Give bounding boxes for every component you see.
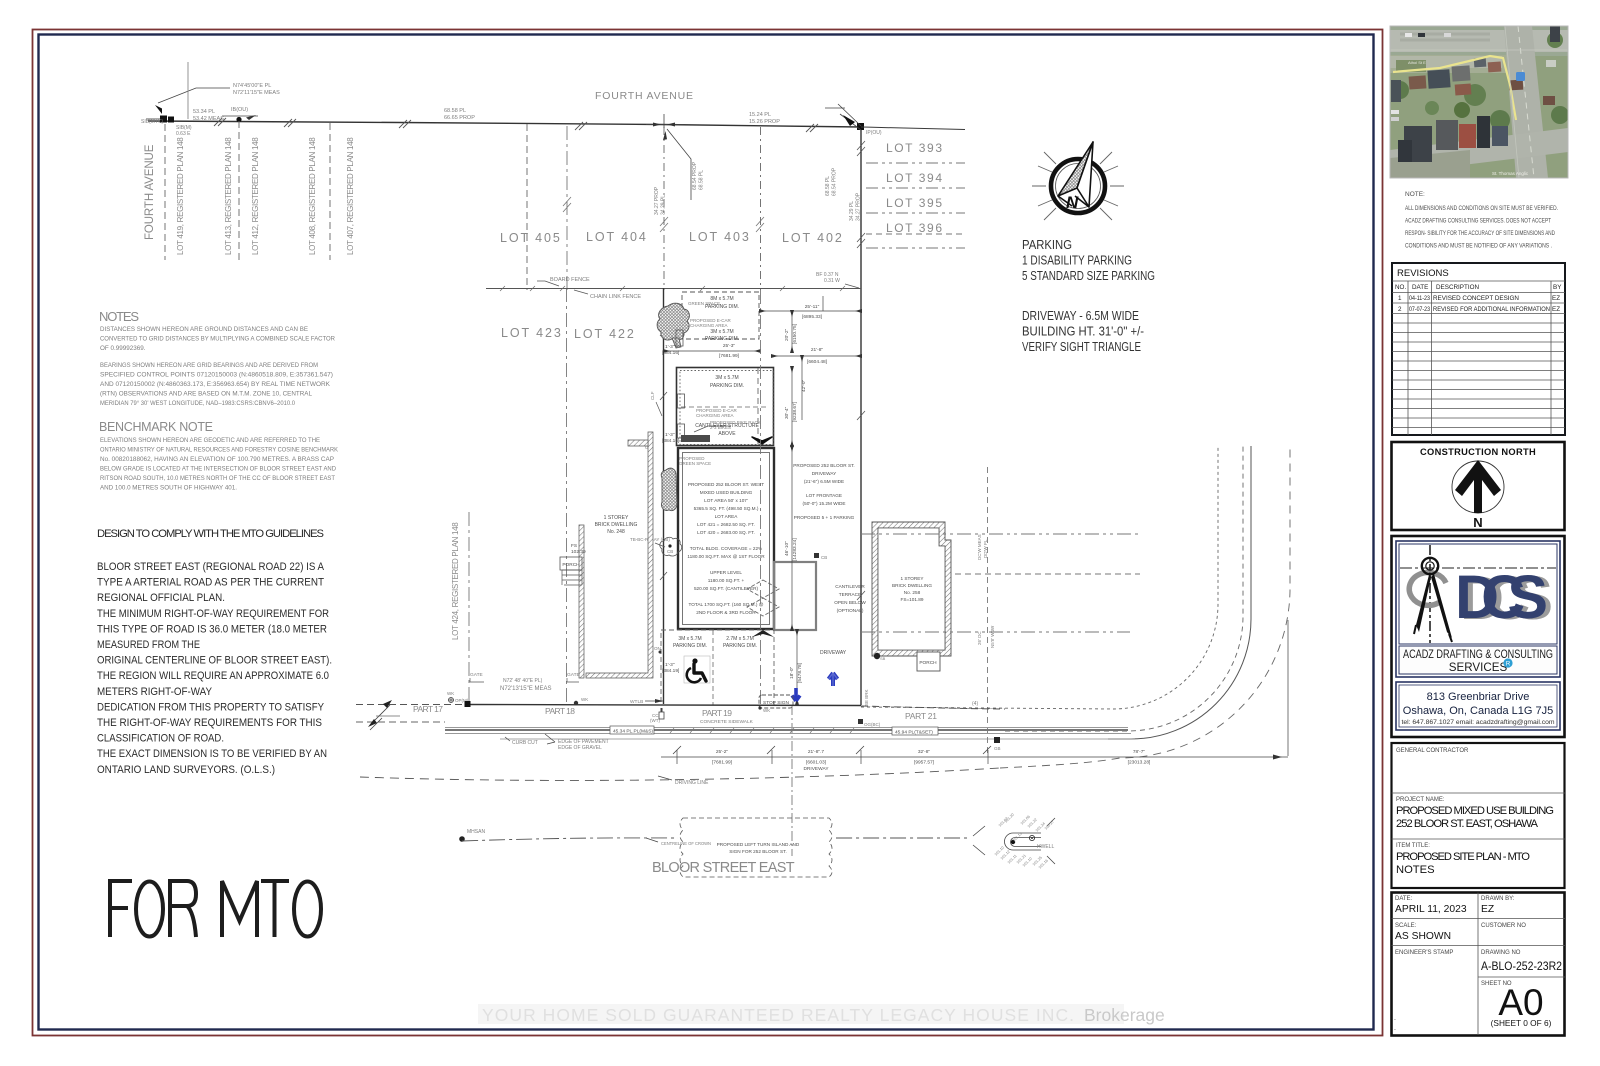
svg-text:PROPOSED 252 BLOOR ST. WEST: PROPOSED 252 BLOOR ST. WEST — [688, 482, 764, 487]
svg-text:BENCHMARK NOTE: BENCHMARK NOTE — [99, 420, 213, 434]
svg-text:N: N — [1066, 193, 1079, 212]
svg-text:N74'45'00"E PL: N74'45'00"E PL — [233, 83, 271, 89]
svg-text:DRIVEWAY: DRIVEWAY — [803, 766, 829, 772]
svg-text:DRIVING LINE: DRIVING LINE — [675, 780, 709, 786]
svg-text:EDGE OF GRAVEL: EDGE OF GRAVEL — [558, 745, 602, 751]
svg-text:St. Thomas Anglic: St. Thomas Anglic — [1492, 171, 1529, 176]
svg-text:PART 19: PART 19 — [702, 708, 733, 718]
svg-text:SIB(MTC): SIB(MTC) — [141, 119, 164, 125]
svg-text:PART 21: PART 21 — [905, 711, 938, 721]
svg-text:SB: SB — [880, 656, 886, 661]
svg-text:VERIFY SIGHT TRIANGLE: VERIFY SIGHT TRIANGLE — [1022, 340, 1141, 354]
svg-text:BY: BY — [1553, 284, 1562, 291]
svg-text:DD'W PL: DD'W PL — [983, 539, 988, 558]
svg-text:FS: FS — [571, 543, 577, 549]
svg-text:PORCH: PORCH — [562, 562, 580, 568]
svg-text:No. 00820188062, HAVING AN ELE: No. 00820188062, HAVING AN ELEVATION OF … — [100, 456, 334, 463]
svg-text:04-11-23: 04-11-23 — [1409, 295, 1430, 302]
svg-text:CONVERTED TO GRID DISTANCES BY: CONVERTED TO GRID DISTANCES BY MULTIPLYI… — [100, 336, 335, 343]
svg-text:DATE:: DATE: — [1395, 896, 1413, 902]
svg-text:1'-3": 1'-3" — [665, 344, 675, 350]
svg-text:BEARINGS SHOWN HEREON ARE GRID: BEARINGS SHOWN HEREON ARE GRID BEARINGS … — [100, 362, 318, 369]
svg-text:DC'W MEAS: DC'W MEAS — [977, 534, 982, 560]
svg-text:CONSTRUCTION NORTH: CONSTRUCTION NORTH — [1420, 447, 1536, 457]
svg-text:APRIL 11, 2023: APRIL 11, 2023 — [1395, 904, 1467, 915]
svg-text:25'-2": 25'-2" — [716, 749, 729, 755]
svg-text:ORIGINAL CENTERLINE OF BLOOR S: ORIGINAL CENTERLINE OF BLOOR STREET EAST… — [97, 655, 332, 667]
svg-text:.: . — [1394, 1025, 1396, 1032]
svg-text:34.27 PROP: 34.27 PROP — [654, 186, 660, 215]
svg-text:AND 07120150002 (N:4860363.173: AND 07120150002 (N:4860363.173, E:356963… — [100, 381, 331, 388]
svg-text:34.29 PL: 34.29 PL — [849, 201, 855, 221]
svg-text:[384.19]: [384.19] — [662, 668, 679, 674]
svg-text:LOT 404: LOT 404 — [586, 230, 648, 244]
svg-text:IP(OU): IP(OU) — [866, 130, 882, 136]
svg-text:1 STOREY: 1 STOREY — [900, 576, 924, 581]
svg-text:NOTES: NOTES — [1396, 864, 1435, 876]
svg-text:DESIGN TO COMPLY WITH THE MTO: DESIGN TO COMPLY WITH THE MTO GUIDELINES — [97, 528, 324, 540]
svg-text:LOT 394: LOT 394 — [886, 171, 944, 185]
svg-text:AS SHOWN: AS SHOWN — [1395, 931, 1451, 942]
svg-text:Athol St E: Athol St E — [1408, 60, 1426, 65]
svg-text:DEDICATION FROM THIS PROPERTY: DEDICATION FROM THIS PROPERTY TO SATISFY — [97, 701, 324, 713]
svg-text:A0: A0 — [1498, 982, 1543, 1023]
svg-text:CHARGING AREA: CHARGING AREA — [696, 413, 734, 418]
svg-text:SERVICES: SERVICES — [1449, 661, 1508, 674]
svg-text:PROPOSED 5 + 1 PARKING: PROPOSED 5 + 1 PARKING — [794, 515, 855, 520]
svg-text:LOT 408, REGISTERED PLAN 148: LOT 408, REGISTERED PLAN 148 — [308, 137, 317, 255]
svg-text:[6150.75]: [6150.75] — [792, 324, 798, 344]
svg-text:EZ: EZ — [1552, 306, 1560, 313]
svg-text:REVISED CONCEPT DESIGN: REVISED CONCEPT DESIGN — [1433, 295, 1519, 302]
svg-text:[6604.48]: [6604.48] — [807, 359, 827, 365]
svg-text:LOT AREA: LOT AREA — [715, 514, 739, 519]
svg-text:CURB CUT: CURB CUT — [512, 740, 538, 746]
svg-text:THE REGION WILL REQUIRE AN APP: THE REGION WILL REQUIRE AN APPROXIMATE 6… — [97, 670, 329, 682]
svg-text:THE RIGHT-OF-WAY REQUIREMENTS: THE RIGHT-OF-WAY REQUIREMENTS FOR THIS — [97, 717, 322, 729]
svg-text:(50'-0") 15.2M WIDE: (50'-0") 15.2M WIDE — [803, 501, 846, 506]
svg-text:18'-0": 18'-0" — [789, 666, 795, 679]
svg-text:DRAWN BY:: DRAWN BY: — [1481, 896, 1515, 902]
svg-text:25'-3": 25'-3" — [723, 343, 736, 349]
svg-text:WK: WK — [447, 691, 454, 696]
svg-text:GENERAL CONTRACTOR: GENERAL CONTRACTOR — [1396, 748, 1469, 754]
svg-text:LOT 423: LOT 423 — [501, 326, 563, 340]
svg-text:3M x 5.7M: 3M x 5.7M — [710, 329, 733, 335]
svg-text:SE BRK: SE BRK — [864, 689, 869, 706]
svg-text:LOT 407, REGISTERED PLAN 148: LOT 407, REGISTERED PLAN 148 — [346, 137, 355, 255]
svg-text:2-3 BIKES: 2-3 BIKES — [710, 425, 731, 430]
svg-text:78'-7": 78'-7" — [1133, 749, 1146, 755]
svg-text:PROPOSED MIXED USE BUILDING: PROPOSED MIXED USE BUILDING — [1396, 805, 1554, 817]
svg-text:813 Greenbriar Drive: 813 Greenbriar Drive — [1427, 691, 1530, 703]
svg-text:0.63 E: 0.63 E — [176, 131, 191, 137]
svg-text:2ND FLOOR & 3RD FLOOR: 2ND FLOOR & 3RD FLOOR — [696, 610, 756, 615]
svg-text:CHAIN LINK FENCE: CHAIN LINK FENCE — [590, 294, 641, 300]
svg-text:PROPOSED SITE PLAN - MTO: PROPOSED SITE PLAN - MTO — [1396, 851, 1530, 863]
svg-text:GATE: GATE — [567, 672, 580, 678]
svg-text:21'-8".7: 21'-8".7 — [808, 749, 825, 755]
svg-text:LOT FRONTAGE: LOT FRONTAGE — [806, 493, 842, 498]
svg-text:BRICK DWELLING: BRICK DWELLING — [595, 522, 638, 528]
svg-text:DISTANCES SHOWN HEREON ARE GRO: DISTANCES SHOWN HEREON ARE GROUND DISTAN… — [100, 326, 308, 333]
svg-text:[14283.24]: [14283.24] — [792, 538, 798, 561]
svg-text:DESCRIPTION: DESCRIPTION — [1436, 284, 1479, 291]
svg-text:TERRACE: TERRACE — [839, 592, 861, 597]
svg-text:CLASSIFICATION OF ROAD.: CLASSIFICATION OF ROAD. — [97, 733, 224, 745]
svg-text:BLOOR STREET EAST (REGIONAL RO: BLOOR STREET EAST (REGIONAL ROAD 22) IS … — [97, 561, 324, 573]
svg-text:[384.16]: [384.16] — [662, 438, 679, 444]
svg-text:PART 17: PART 17 — [413, 704, 444, 714]
svg-text:BELOW GRADE IS LOCATED AT THE: BELOW GRADE IS LOCATED AT THE INTERSECTI… — [100, 466, 336, 473]
svg-text:EZ: EZ — [1552, 295, 1560, 302]
svg-text:OPEN BELOW: OPEN BELOW — [834, 600, 866, 605]
svg-text:68.58 PL: 68.58 PL — [825, 176, 831, 196]
svg-text:252 BLOOR ST. EAST, OSHAWA: 252 BLOOR ST. EAST, OSHAWA — [1396, 818, 1539, 830]
svg-text:GREEN SPACE: GREEN SPACE — [679, 461, 711, 466]
svg-text:A-BLO-252-23R2: A-BLO-252-23R2 — [1481, 959, 1562, 973]
svg-text:32'-8": 32'-8" — [918, 749, 931, 755]
svg-text:HWELL: HWELL — [1037, 844, 1054, 850]
svg-text:LOT 393: LOT 393 — [886, 141, 944, 155]
svg-text:MIXED USED BUILDING: MIXED USED BUILDING — [700, 490, 753, 495]
svg-text:45.94 PL(T&SET): 45.94 PL(T&SET) — [895, 730, 933, 736]
svg-text:34.27 PROP: 34.27 PROP — [856, 192, 862, 221]
svg-text:NO.: NO. — [1395, 284, 1406, 291]
svg-text:68.58 PL: 68.58 PL — [699, 170, 705, 190]
svg-text:ELEVATIONS SHOWN HEREON ARE GE: ELEVATIONS SHOWN HEREON ARE GEODETIC AND… — [100, 437, 320, 444]
svg-text:0.31 W: 0.31 W — [824, 278, 840, 284]
svg-text:N: N — [1473, 515, 1482, 530]
svg-text:IB(OU): IB(OU) — [231, 107, 248, 113]
svg-text:68.54 PROP: 68.54 PROP — [692, 161, 698, 190]
svg-text:METERS RIGHT-OF-WAY: METERS RIGHT-OF-WAY — [97, 686, 212, 698]
svg-text:68.54 PROP: 68.54 PROP — [832, 167, 838, 196]
svg-text:1'-3": 1'-3" — [665, 432, 675, 438]
svg-text:42'-0": 42'-0" — [801, 379, 807, 392]
svg-text:CB: CB — [821, 555, 827, 560]
svg-text:FS=101.89: FS=101.89 — [900, 597, 923, 602]
svg-text:UPPER LEVEL: UPPER LEVEL — [710, 570, 742, 575]
svg-text:GATE: GATE — [470, 672, 483, 678]
svg-text:SPECIFIED CONTROL POINTS 07120: SPECIFIED CONTROL POINTS 07120150003 (N:… — [100, 372, 333, 379]
svg-text:PORCH: PORCH — [919, 660, 937, 666]
svg-text:CONDITIONS AND MUST BE NOTIFIE: CONDITIONS AND MUST BE NOTIFIED OF ANY V… — [1405, 243, 1552, 250]
svg-text:THE EXACT DIMENSION IS TO BE V: THE EXACT DIMENSION IS TO BE VERIFIED BY… — [97, 748, 327, 760]
svg-text:tel: 647.867.1027 email: ac: tel: 647.867.1027 email: acadzdrafting@g… — [1401, 719, 1554, 726]
svg-text:ONTARIO MINISTRY OF NATURAL RE: ONTARIO MINISTRY OF NATURAL RESOURCES AN… — [100, 447, 339, 454]
svg-text:26' DC: 26' DC — [977, 631, 982, 645]
svg-text:LOT 402: LOT 402 — [782, 231, 844, 245]
svg-text:Oshawa, On, Canada L1G 7J5: Oshawa, On, Canada L1G 7J5 — [1403, 705, 1553, 717]
svg-text:[7681.99]: [7681.99] — [712, 760, 732, 766]
svg-text:[6601.03]: [6601.03] — [806, 760, 826, 766]
svg-text:THE MINIMUM RIGHT-OF-WAY REQUI: THE MINIMUM RIGHT-OF-WAY REQUIREMENT FOR — [97, 608, 329, 620]
svg-text:ON: ON — [654, 646, 661, 651]
svg-text:CONCRETE SIDEWALK: CONCRETE SIDEWALK — [700, 719, 754, 725]
svg-text:N5'8' W4W: N5'8' W4W — [990, 625, 995, 648]
svg-text:FOURTH AVENUE: FOURTH AVENUE — [144, 143, 156, 240]
svg-text:PROPOSED LEFT TURN ISLAND AND: PROPOSED LEFT TURN ISLAND AND — [717, 842, 800, 847]
svg-text:3M x 5.7M: 3M x 5.7M — [678, 636, 701, 642]
svg-text:21'-8": 21'-8" — [811, 347, 824, 353]
svg-text:DATE: DATE — [1412, 284, 1428, 291]
svg-text:REVISIONS: REVISIONS — [1397, 268, 1449, 279]
svg-text:TOTAL BLDG. COVERAGE = 22%: TOTAL BLDG. COVERAGE = 22% — [690, 546, 762, 551]
svg-text:2: 2 — [1398, 306, 1402, 313]
svg-text:.: . — [1394, 1015, 1396, 1022]
svg-text:BRICK DWELLING: BRICK DWELLING — [892, 583, 932, 588]
svg-text:LOT 424, REGISTERED PLAN 148: LOT 424, REGISTERED PLAN 148 — [451, 522, 460, 640]
svg-text:DRIVEWAY - 6.5M WIDE: DRIVEWAY - 6.5M WIDE — [1022, 309, 1139, 323]
svg-text:(4): (4) — [972, 701, 978, 707]
svg-text:DRIVEWAY: DRIVEWAY — [820, 650, 847, 656]
svg-text:[9238.67]: [9238.67] — [792, 402, 798, 422]
svg-text:N72'11'15"E MEAS: N72'11'15"E MEAS — [233, 90, 280, 96]
svg-text:LOT 396: LOT 396 — [886, 221, 944, 235]
svg-text:EZ: EZ — [1481, 904, 1494, 915]
svg-text:PARKING DIM.: PARKING DIM. — [673, 643, 707, 649]
svg-text:PARKING DIM.: PARKING DIM. — [710, 383, 744, 389]
svg-text:BOARD FENCE: BOARD FENCE — [550, 277, 590, 283]
svg-text:WK: WK — [581, 697, 588, 702]
svg-text:No. 258: No. 258 — [904, 590, 921, 595]
svg-text:68.58 PL: 68.58 PL — [444, 108, 466, 114]
svg-text:GREEN SPACE: GREEN SPACE — [688, 301, 720, 306]
svg-text:OF 0.99992369.: OF 0.99992369. — [100, 345, 146, 352]
svg-text:CUSTOMER NO: CUSTOMER NO — [1481, 923, 1526, 929]
svg-text:DCS: DCS — [1455, 563, 1548, 631]
svg-text:15.24 PL: 15.24 PL — [749, 112, 771, 118]
svg-text:PROPOSED 252 BLOOR ST.: PROPOSED 252 BLOOR ST. — [793, 463, 854, 468]
svg-text:LOT 419, REGISTERED PLAN 148: LOT 419, REGISTERED PLAN 148 — [176, 137, 185, 255]
svg-text:MERIDIAN 79° 30' WEST LONGITUD: MERIDIAN 79° 30' WEST LONGITUDE, NAD–198… — [100, 399, 295, 407]
svg-text:PART 18: PART 18 — [545, 706, 576, 716]
svg-text:1: 1 — [1398, 295, 1402, 302]
svg-text:LOT AREA 50' x 107': LOT AREA 50' x 107' — [704, 498, 748, 503]
svg-text:ENGINEER'S STAMP: ENGINEER'S STAMP — [1395, 950, 1453, 956]
svg-text:LOT 422: LOT 422 — [574, 327, 636, 341]
svg-text:LOT 405: LOT 405 — [500, 231, 562, 245]
svg-text:LOT 420 = 2683.00 SQ. FT.: LOT 420 = 2683.00 SQ. FT. — [697, 530, 755, 535]
svg-text:CHARGING AREA: CHARGING AREA — [690, 323, 728, 328]
svg-text:3M x 5.7M: 3M x 5.7M — [715, 375, 738, 381]
svg-text:[7681.99]: [7681.99] — [719, 353, 739, 359]
svg-text:No. 248: No. 248 — [607, 529, 625, 535]
svg-text:2.7M x 5.7M: 2.7M x 5.7M — [726, 636, 754, 642]
svg-text:REGIONAL OFFICIAL PLAN.: REGIONAL OFFICIAL PLAN. — [97, 592, 225, 604]
svg-text:CANTILEVER: CANTILEVER — [835, 584, 865, 589]
svg-text:BLOOR STREET EAST: BLOOR STREET EAST — [652, 860, 798, 876]
svg-text:MHSAN: MHSAN — [467, 829, 485, 835]
svg-text:OG(BC): OG(BC) — [864, 722, 881, 727]
svg-text:(SHEET 0 OF 6): (SHEET 0 OF 6) — [1491, 1018, 1552, 1028]
svg-text:SIGN FOR 252 BLOOR ST.: SIGN FOR 252 BLOOR ST. — [729, 849, 787, 854]
svg-text:34.29 PL: 34.29 PL — [661, 195, 667, 215]
svg-text:45.34 PL.PL(M&S): 45.34 PL.PL(M&S) — [613, 729, 653, 735]
svg-text:TYPE A ARTERIAL ROAD AS PER TH: TYPE A ARTERIAL ROAD AS PER THE CURRENT — [97, 577, 324, 589]
svg-text:FOURTH AVENUE: FOURTH AVENUE — [595, 90, 695, 102]
svg-text:ACADZ DRAFTING CONSULTING SERV: ACADZ DRAFTING CONSULTING SERVICES. DOES… — [1405, 218, 1551, 225]
svg-text:(RTN) OBSERVATIONS AND ARE BAS: (RTN) OBSERVATIONS AND ARE BASED ON M.T.… — [100, 391, 312, 398]
svg-text:102.39: 102.39 — [571, 549, 586, 555]
svg-text:LOT 413, REGISTERED PLAN 148: LOT 413, REGISTERED PLAN 148 — [224, 137, 233, 255]
svg-text:46'-10": 46'-10" — [784, 541, 790, 556]
svg-text:1180.00 SQ.FT. MAX @ 1ST FLOOR: 1180.00 SQ.FT. MAX @ 1ST FLOOR — [687, 554, 765, 559]
svg-text:5365.5 SQ. FT. (498.50 SQ.M.): 5365.5 SQ. FT. (498.50 SQ.M.) — [694, 506, 759, 511]
svg-text:THIS TYPE OF ROAD IS 36.0 METE: THIS TYPE OF ROAD IS 36.0 METER (18.0 ME… — [97, 623, 327, 635]
svg-text:ALL DIMENSIONS AND CONDITIONS: ALL DIMENSIONS AND CONDITIONS ON SITE MU… — [1405, 205, 1558, 212]
svg-text:TOTAL 1700 SQ.FT. (160 SQ.M.): TOTAL 1700 SQ.FT. (160 SQ.M.) @ — [688, 602, 763, 607]
svg-text:ONTARIO LAND SURVEYORS. (O.L.S: ONTARIO LAND SURVEYORS. (O.L.S.) — [97, 764, 275, 776]
svg-text:GB: GB — [994, 746, 1001, 751]
svg-text:53.34 PL: 53.34 PL — [193, 109, 215, 115]
svg-text:CLF: CLF — [650, 391, 655, 400]
svg-text:PROJECT NAME:: PROJECT NAME: — [1396, 797, 1445, 803]
svg-text:CENTRELINE OF CROWN: CENTRELINE OF CROWN — [661, 841, 711, 846]
svg-text:SCALE:: SCALE: — [1395, 923, 1417, 929]
svg-text:Brokerage: Brokerage — [1084, 1005, 1165, 1025]
svg-text:30'-4": 30'-4" — [784, 406, 790, 419]
svg-text:DRAWING NO: DRAWING NO — [1481, 950, 1521, 956]
svg-text:1'-3": 1'-3" — [665, 662, 675, 668]
svg-text:ACADZ DRAFTING & CONSULTING: ACADZ DRAFTING & CONSULTING — [1403, 648, 1553, 661]
svg-text:YOUR HOME SOLD GUARANTEED REAL: YOUR HOME SOLD GUARANTEED REALTY LEGACY … — [482, 1005, 1074, 1025]
svg-text:53.42 MEAS: 53.42 MEAS — [193, 116, 224, 122]
svg-text:1 DISABILITY PARKING: 1 DISABILITY PARKING — [1022, 254, 1132, 268]
svg-text:LOT 395: LOT 395 — [886, 196, 944, 210]
svg-text:ABOVE: ABOVE — [718, 431, 736, 437]
svg-text:[9957.57]: [9957.57] — [914, 760, 934, 766]
svg-text:WTLB: WTLB — [630, 699, 643, 705]
svg-text:NOTES: NOTES — [99, 309, 139, 324]
svg-text:(OPTIONAL): (OPTIONAL) — [837, 608, 864, 613]
svg-text:CB: CB — [667, 549, 673, 554]
svg-text:PARKING DIM.: PARKING DIM. — [723, 643, 757, 649]
svg-text:MEASURED FROM THE: MEASURED FROM THE — [97, 639, 200, 651]
svg-text:1180.00 SQ.FT. +: 1180.00 SQ.FT. + — [708, 578, 745, 583]
svg-text:07-07-23: 07-07-23 — [1409, 306, 1430, 313]
svg-text:[6895.33]: [6895.33] — [802, 314, 822, 320]
svg-text:N72'13'15"E MEAS: N72'13'15"E MEAS — [500, 686, 551, 692]
svg-text:RESPON- SIBILITY FOR THE ACCUR: RESPON- SIBILITY FOR THE ACCURACY OF SIT… — [1405, 230, 1555, 237]
svg-text:5 STANDARD SIZE PARKING: 5 STANDARD SIZE PARKING — [1022, 269, 1155, 283]
svg-text:NOTE:: NOTE: — [1405, 191, 1425, 198]
svg-text:R: R — [1506, 662, 1511, 668]
svg-text:LOT 412, REGISTERED PLAN 148: LOT 412, REGISTERED PLAN 148 — [251, 137, 260, 255]
svg-text:REVISED FOR ADDITIONAL INFORMA: REVISED FOR ADDITIONAL INFORMATION — [1433, 306, 1550, 313]
svg-text:DRIVEWAY: DRIVEWAY — [812, 471, 837, 476]
svg-text:[5478.78]: [5478.78] — [797, 663, 803, 683]
svg-text:66.65 PROP: 66.65 PROP — [444, 115, 475, 121]
svg-text:PARKING DIM.: PARKING DIM. — [705, 336, 739, 342]
svg-text:ITEM TITLE:: ITEM TITLE: — [1396, 843, 1430, 849]
svg-text:BUILDING HT. 31'-0" +/-: BUILDING HT. 31'-0" +/- — [1022, 325, 1144, 339]
svg-text:WK: WK — [763, 708, 770, 713]
svg-text:[23013.28]: [23013.28] — [1128, 760, 1151, 766]
svg-text:15.26 PROP: 15.26 PROP — [749, 119, 780, 125]
svg-text:RITSON ROAD SOUTH, 10.0 METRES: RITSON ROAD SOUTH, 10.0 METRES NORTH OF … — [100, 475, 335, 482]
svg-text:PARKING: PARKING — [1022, 238, 1072, 252]
svg-text:N72' 48' 40"E PL): N72' 48' 40"E PL) — [503, 678, 543, 684]
svg-text:LOT 403: LOT 403 — [689, 230, 751, 244]
svg-text:20'-2": 20'-2" — [784, 328, 790, 341]
svg-text:25'-11": 25'-11" — [805, 304, 820, 310]
svg-text:AND 100.0 METRES SOUTH OF HIGH: AND 100.0 METRES SOUTH OF HIGHWAY 401. — [100, 485, 237, 492]
svg-text:(21'-6") 6.5M WIDE: (21'-6") 6.5M WIDE — [804, 479, 844, 484]
svg-text:1 STOREY: 1 STOREY — [604, 515, 629, 521]
svg-text:LOT 421 = 2682.50 SQ. FT.: LOT 421 = 2682.50 SQ. FT. — [697, 522, 755, 527]
